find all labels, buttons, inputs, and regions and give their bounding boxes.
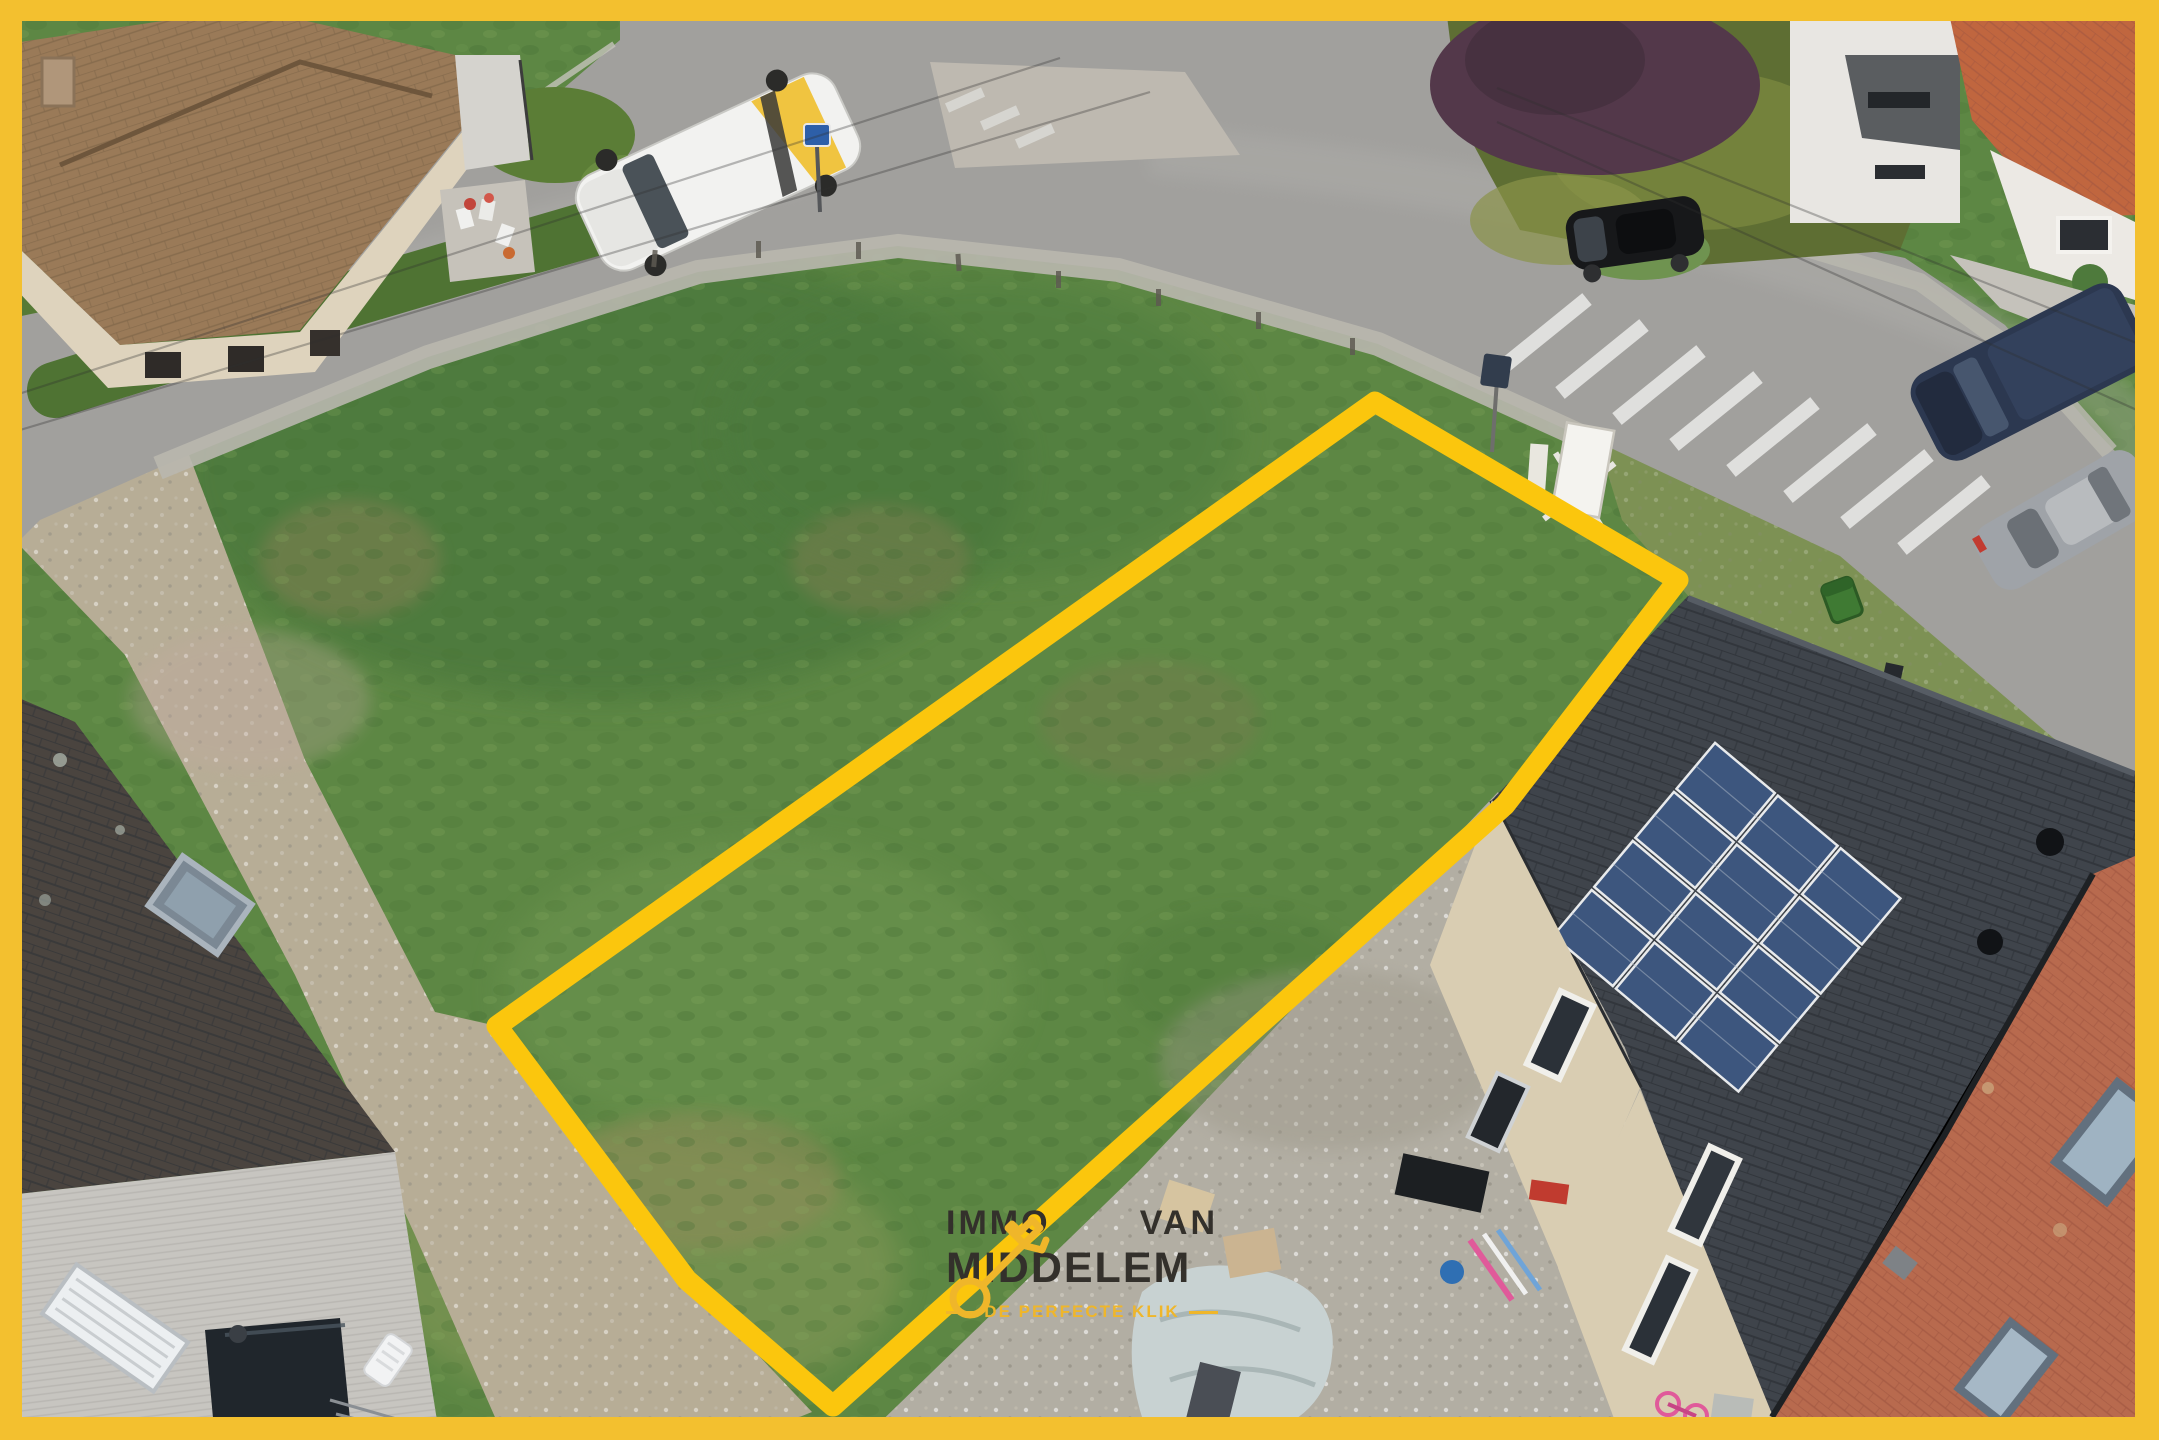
flower-pot bbox=[464, 198, 476, 210]
frame-bottom bbox=[0, 1417, 2159, 1440]
tagline-dash-right bbox=[1189, 1311, 1218, 1314]
real-estate-photo: IMMO VAN MIDDELEM DE PERFECTE KLIK bbox=[0, 0, 2159, 1440]
brand-watermark: IMMO VAN MIDDELEM DE PERFECTE KLIK bbox=[946, 1206, 1218, 1322]
moss-spot bbox=[1982, 1082, 1994, 1094]
traffic-sign bbox=[1480, 353, 1512, 389]
chimney bbox=[42, 58, 74, 106]
street-name-sign bbox=[804, 124, 830, 146]
side-garage bbox=[455, 55, 530, 170]
cardboard-box bbox=[1223, 1228, 1282, 1278]
frame-top bbox=[0, 0, 2159, 21]
suv-roof bbox=[1614, 208, 1677, 256]
moss-spot bbox=[2053, 1223, 2067, 1237]
round-table bbox=[229, 1325, 247, 1343]
roof-vent bbox=[2036, 828, 2064, 856]
white-house-window bbox=[1868, 92, 1930, 108]
roof-vent bbox=[1977, 929, 2003, 955]
key-icon bbox=[946, 1206, 1066, 1326]
flower-pot bbox=[484, 193, 494, 203]
flower-pot bbox=[503, 247, 515, 259]
logo-word-van: VAN bbox=[1140, 1206, 1218, 1240]
frame-right bbox=[2135, 0, 2159, 1440]
lichen-spot bbox=[53, 753, 67, 767]
frame-left bbox=[0, 0, 22, 1440]
orange-house-window bbox=[2058, 218, 2110, 252]
pink-gravel-tinge bbox=[130, 630, 370, 770]
purple-tree-core bbox=[1465, 5, 1645, 115]
window bbox=[145, 352, 181, 378]
suv-windshield bbox=[1573, 215, 1609, 263]
blue-bucket bbox=[1440, 1260, 1464, 1284]
lichen-spot bbox=[39, 894, 51, 906]
white-house-window bbox=[1875, 165, 1925, 179]
lichen-spot bbox=[115, 825, 125, 835]
